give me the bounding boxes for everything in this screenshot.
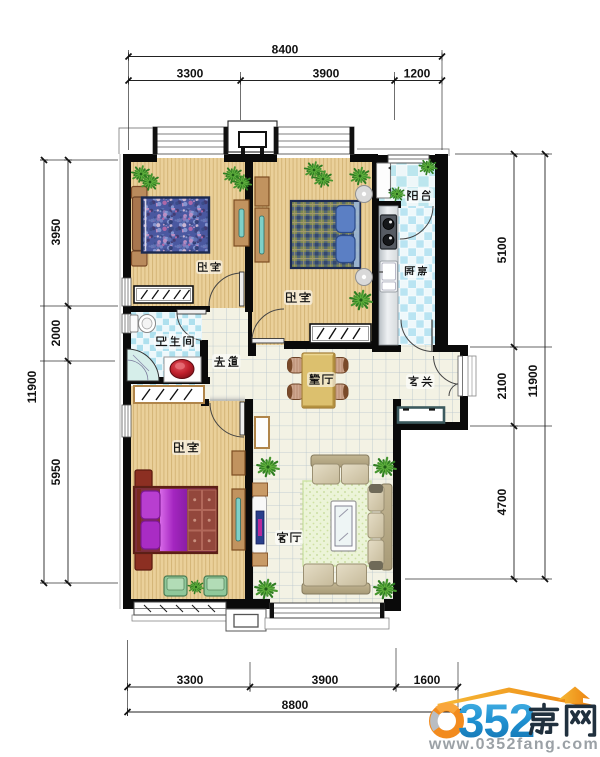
svg-text:5950: 5950 xyxy=(49,458,63,485)
svg-text:5100: 5100 xyxy=(495,236,509,263)
svg-text:2100: 2100 xyxy=(495,372,509,399)
svg-text:3300: 3300 xyxy=(177,673,204,687)
svg-text:3900: 3900 xyxy=(312,673,339,687)
svg-text:1600: 1600 xyxy=(414,673,441,687)
svg-text:3300: 3300 xyxy=(177,67,204,81)
svg-text:11900: 11900 xyxy=(526,364,540,397)
svg-text:8800: 8800 xyxy=(282,698,309,712)
svg-text:www.0352fang.com: www.0352fang.com xyxy=(428,736,599,753)
svg-text:3950: 3950 xyxy=(49,218,63,245)
svg-text:11900: 11900 xyxy=(25,370,39,403)
svg-text:3900: 3900 xyxy=(313,67,340,81)
svg-text:2000: 2000 xyxy=(49,319,63,346)
svg-text:4700: 4700 xyxy=(495,488,509,515)
svg-text:8400: 8400 xyxy=(272,43,299,57)
svg-text:1200: 1200 xyxy=(404,67,431,81)
